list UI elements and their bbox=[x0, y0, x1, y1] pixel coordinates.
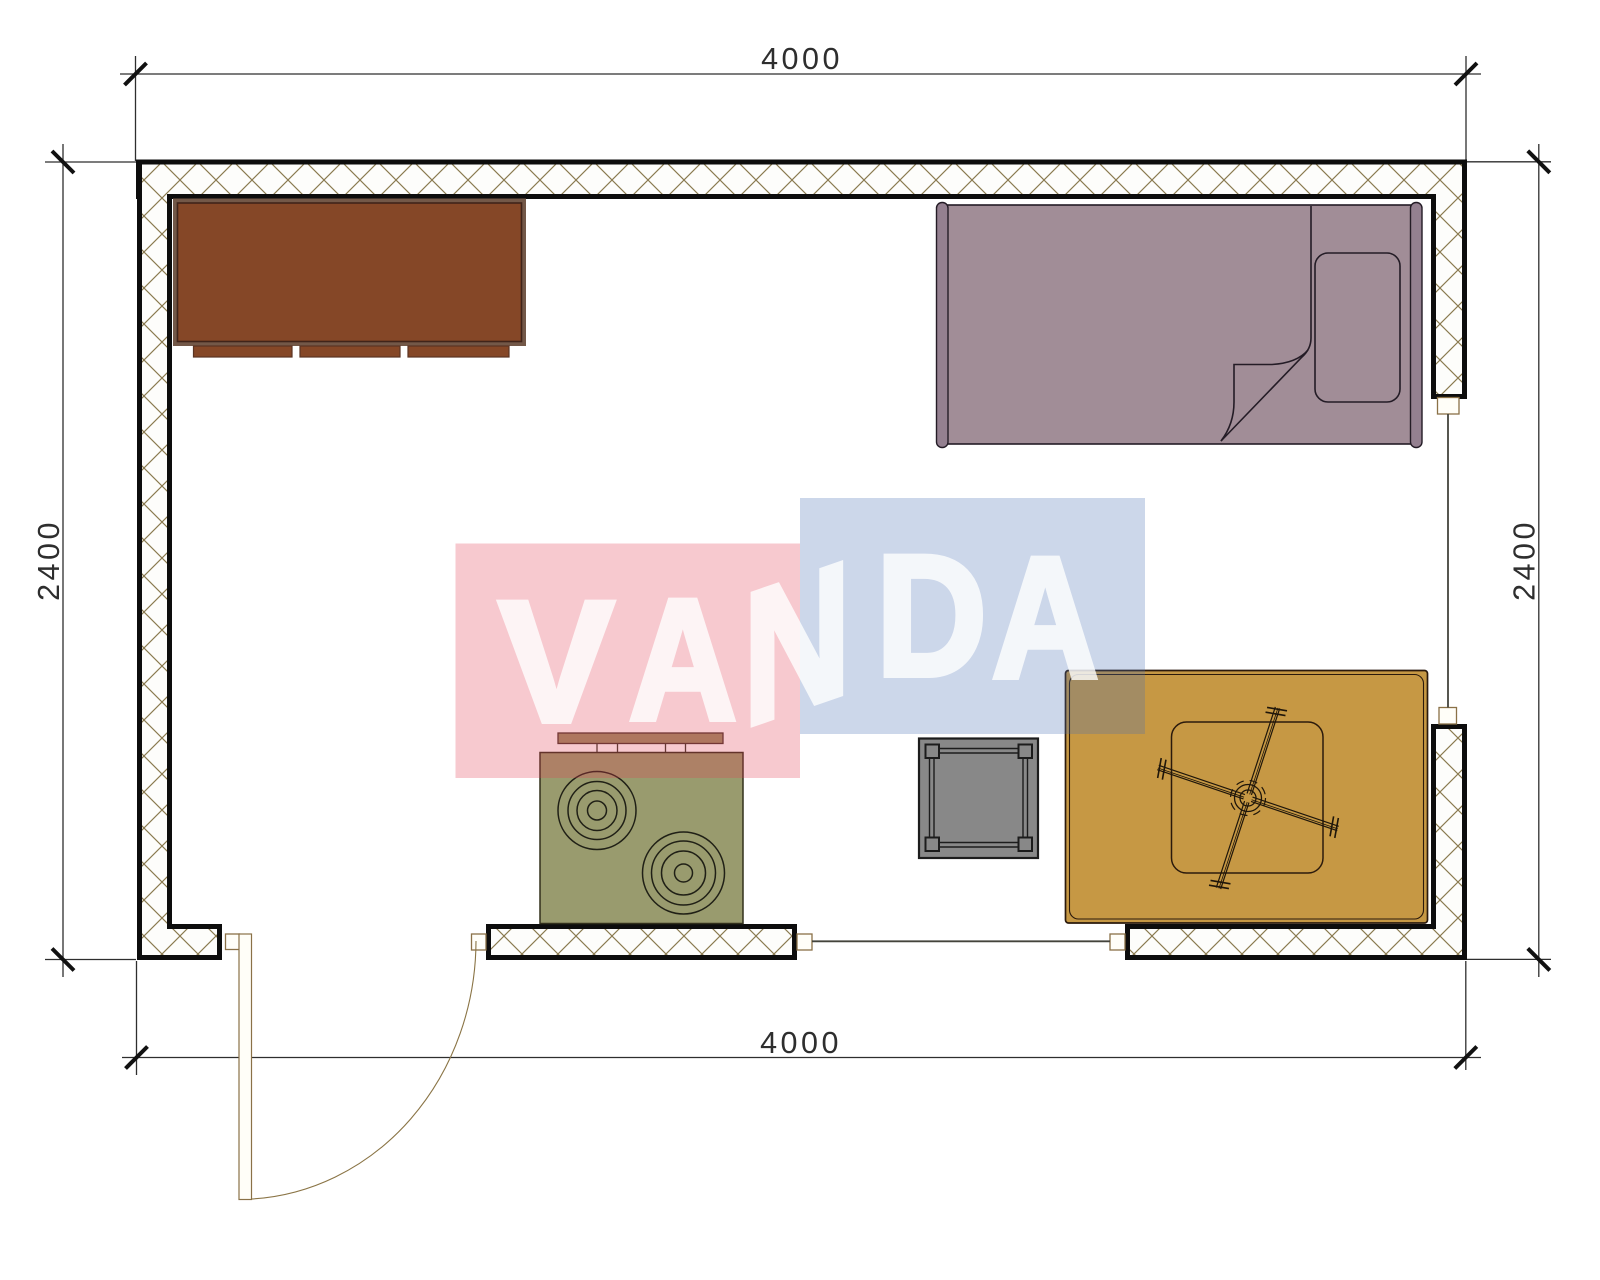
svg-text:A: A bbox=[629, 564, 737, 756]
svg-text:N: N bbox=[743, 519, 851, 768]
svg-text:4000: 4000 bbox=[761, 42, 843, 76]
svg-text:D: D bbox=[876, 519, 987, 712]
svg-text:V: V bbox=[499, 566, 614, 758]
svg-text:2400: 2400 bbox=[1508, 519, 1542, 601]
svg-text:2400: 2400 bbox=[32, 519, 66, 601]
svg-text:4000: 4000 bbox=[760, 1026, 842, 1060]
svg-text:A: A bbox=[992, 521, 1098, 713]
